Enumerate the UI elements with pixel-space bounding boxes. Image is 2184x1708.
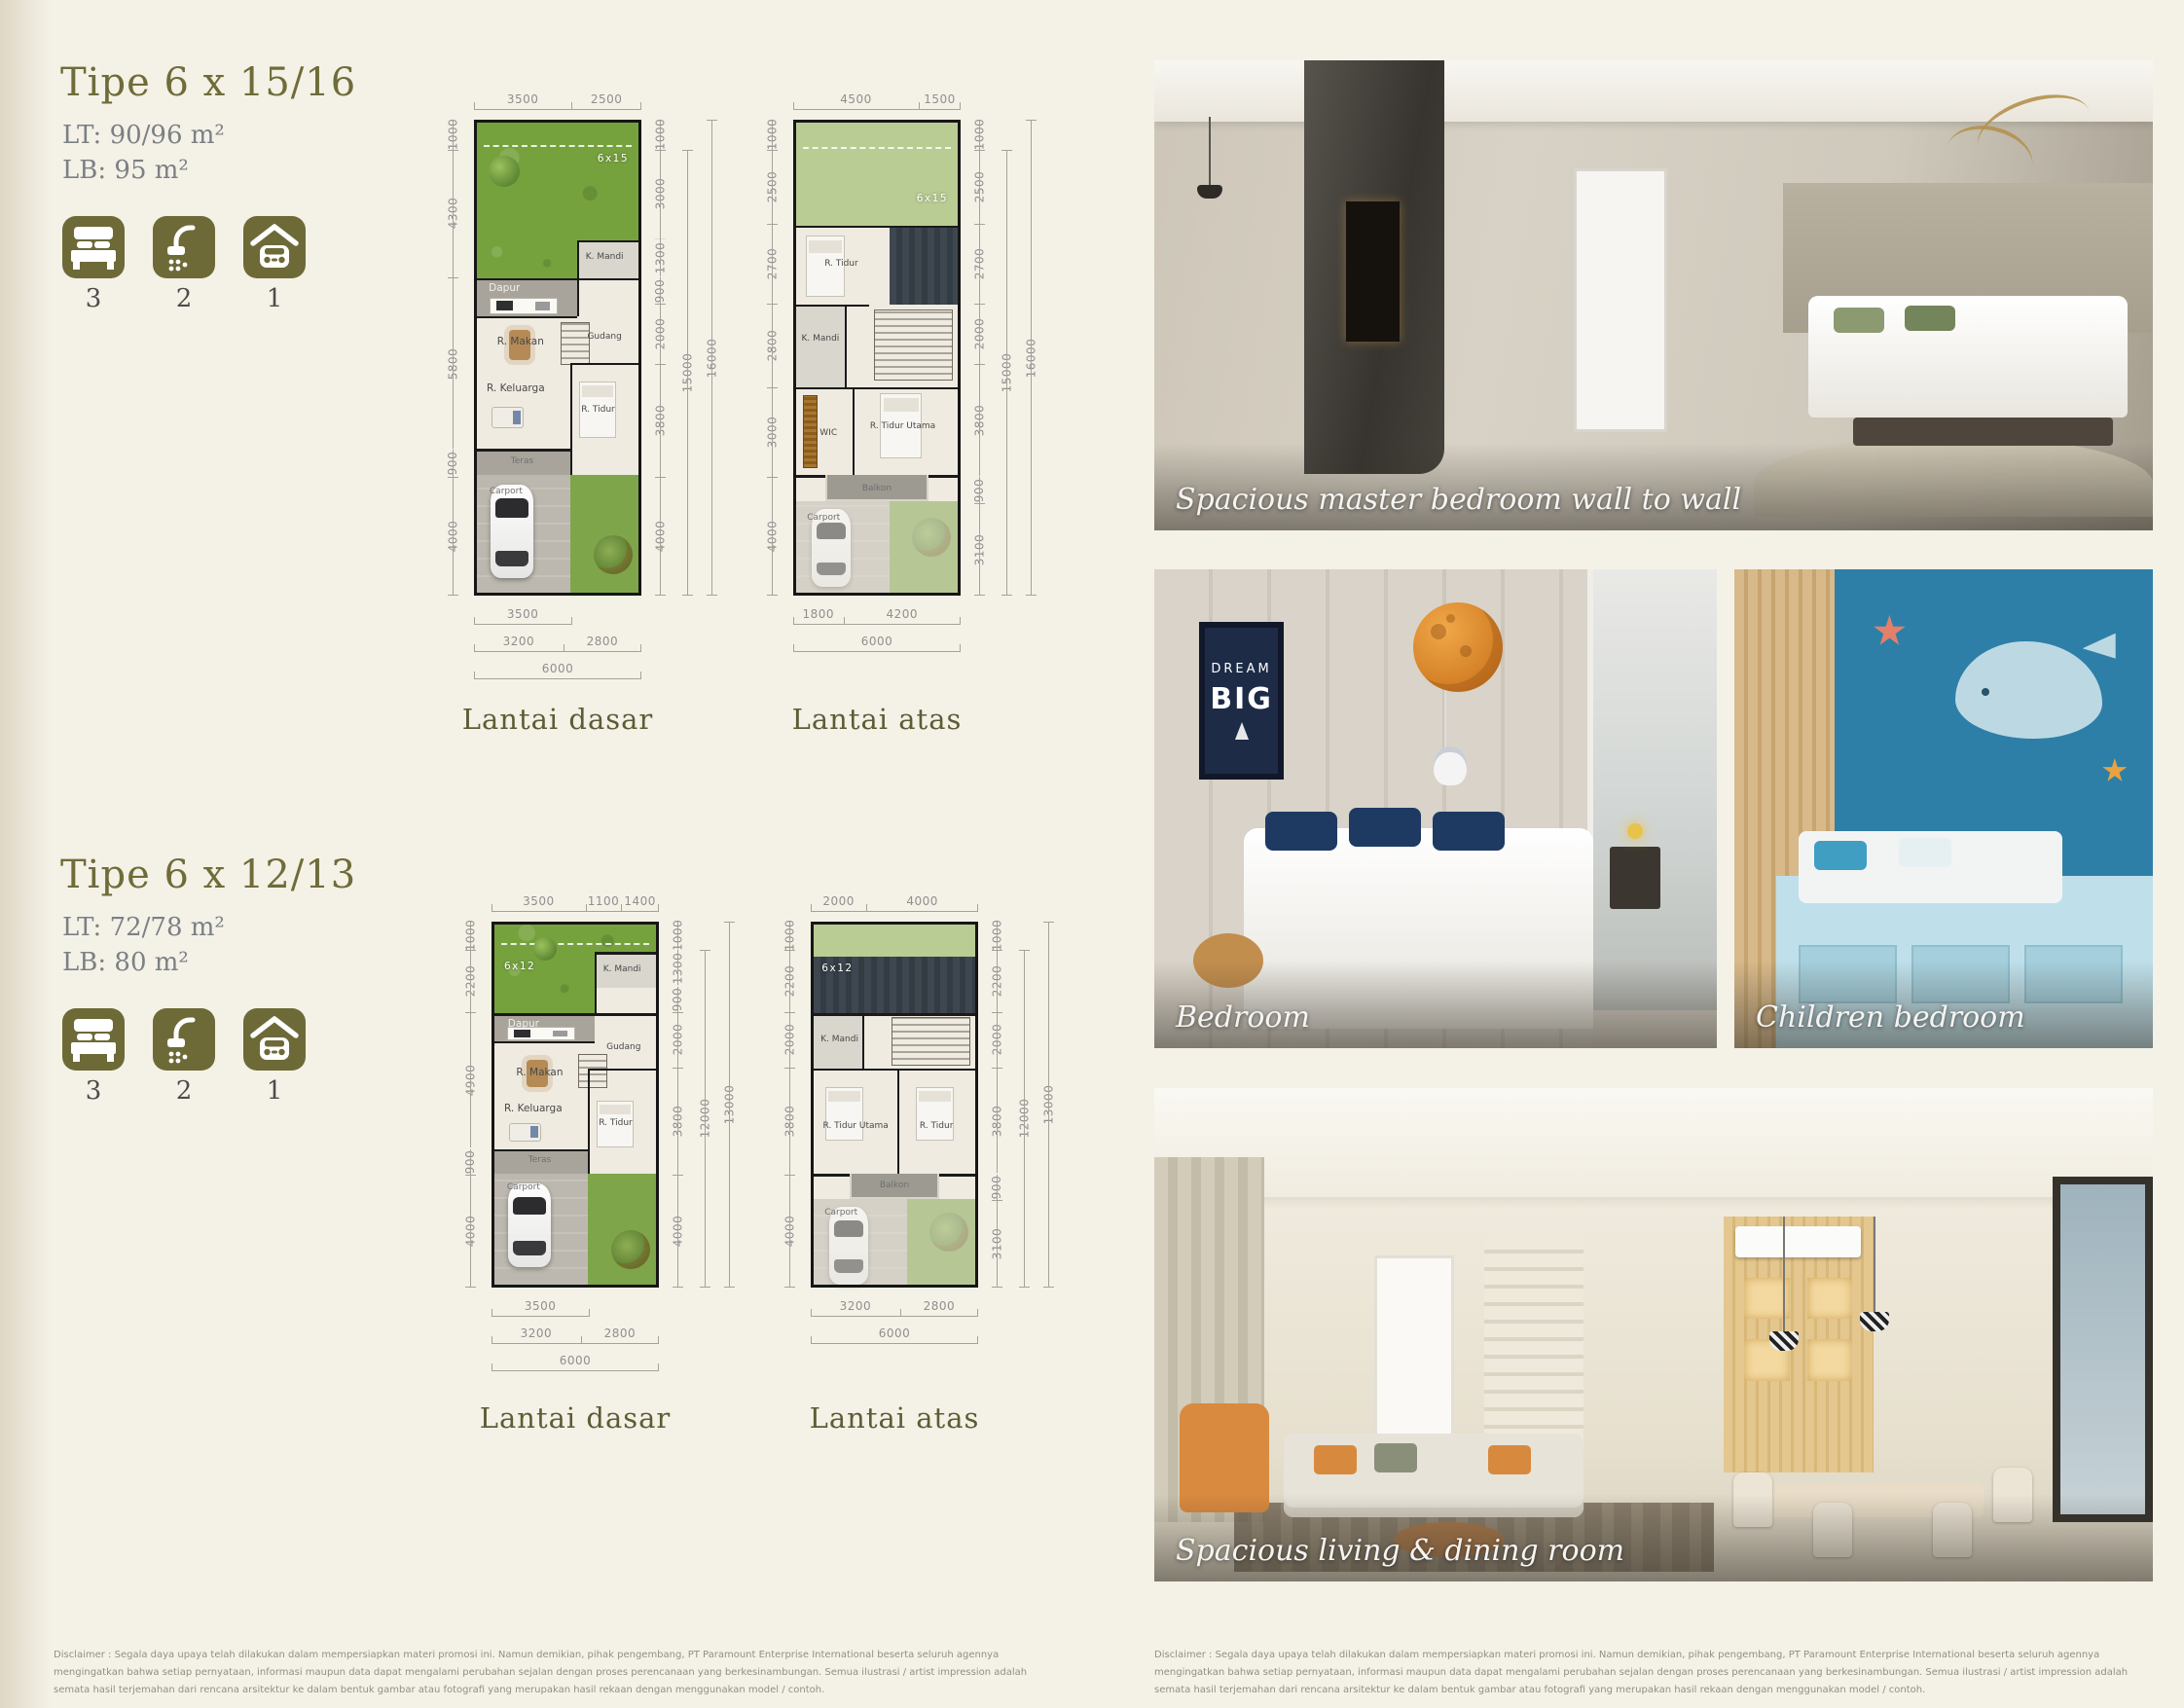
bottom-dimensions: 3500 bbox=[491, 1297, 659, 1317]
wall bbox=[862, 1013, 864, 1069]
dim-label: 900 bbox=[462, 1147, 478, 1177]
bed-icon bbox=[62, 1008, 125, 1071]
dim-label: 3500 bbox=[505, 92, 541, 106]
room-label: R. Tidur bbox=[581, 405, 615, 415]
wall bbox=[595, 952, 597, 1013]
bed bbox=[825, 1087, 864, 1142]
dim-label: 3000 bbox=[652, 175, 668, 213]
dim-label: 4000 bbox=[445, 518, 460, 556]
wall bbox=[494, 1149, 588, 1152]
sofa bbox=[509, 1123, 542, 1143]
type-title: Tipe 6 x 15/16 bbox=[60, 60, 356, 105]
sofa bbox=[491, 407, 525, 428]
cushion bbox=[1488, 1445, 1531, 1474]
room-label: R. Tidur bbox=[599, 1118, 633, 1128]
plot-size-badge: 6x12 bbox=[504, 961, 535, 972]
overall-dimensions: 12000 bbox=[693, 922, 716, 1288]
overall-dimensions: 16000 bbox=[700, 120, 723, 596]
car-icon bbox=[508, 1183, 551, 1267]
stairs bbox=[561, 322, 590, 364]
dim-label: 3100 bbox=[989, 1225, 1004, 1263]
wall bbox=[570, 363, 638, 365]
dim-label: 2500 bbox=[764, 167, 780, 205]
lit-niche bbox=[1807, 1339, 1852, 1380]
room-label: Teras bbox=[528, 1155, 551, 1165]
dim-label: 1100 bbox=[586, 894, 622, 908]
bathroom-count: 2 bbox=[153, 1076, 215, 1106]
photo-caption-bar: Spacious living & dining room bbox=[1154, 1494, 2153, 1581]
land-area: LT: 72/78 m² bbox=[62, 913, 225, 942]
dim-label: 16000 bbox=[1023, 335, 1038, 381]
pillow bbox=[1349, 808, 1421, 847]
car-icon bbox=[829, 1207, 868, 1285]
dim-label: 2500 bbox=[971, 167, 987, 205]
dim-label: 6000 bbox=[877, 1326, 913, 1340]
lawn bbox=[907, 1199, 975, 1285]
cushion bbox=[1314, 1445, 1357, 1474]
dim-label: 900 bbox=[445, 449, 460, 478]
pillow bbox=[1899, 838, 1951, 867]
dim-label: 3000 bbox=[764, 414, 780, 452]
room-label: R. Tidur Utama bbox=[870, 421, 935, 431]
dim-label: 900 bbox=[971, 475, 987, 504]
overall-width-dimension: 6000 bbox=[474, 660, 641, 679]
dim-label: 2000 bbox=[670, 1021, 685, 1059]
dim-label: 2000 bbox=[652, 315, 668, 353]
dim-label: 3500 bbox=[521, 894, 557, 908]
dim-label: 3800 bbox=[782, 1103, 797, 1141]
wardrobe bbox=[1304, 60, 1444, 474]
floor-caption: Lantai dasar bbox=[460, 703, 655, 736]
photo-caption: Children bedroom bbox=[1756, 1000, 2025, 1035]
bottom-dimensions: 3200 2800 bbox=[491, 1325, 659, 1344]
bottom-dimensions: 3200 2800 bbox=[811, 1297, 978, 1317]
wall bbox=[570, 363, 572, 475]
dim-label: 1000 bbox=[971, 116, 987, 154]
overall-dimensions: 13000 bbox=[717, 922, 741, 1288]
page-edge-shade bbox=[0, 0, 51, 1708]
dim-label: 2800 bbox=[922, 1299, 958, 1313]
room-label: R. Tidur Utama bbox=[823, 1121, 889, 1131]
wall bbox=[796, 305, 869, 307]
dim-label: 2000 bbox=[971, 315, 987, 353]
garden-zone bbox=[814, 925, 975, 957]
room-label: Carport bbox=[807, 513, 840, 523]
bench bbox=[1853, 418, 2113, 446]
dim-label: 15000 bbox=[679, 349, 695, 395]
wall bbox=[814, 1013, 975, 1016]
room-label: Carport bbox=[824, 1208, 857, 1217]
dim-label: 900 bbox=[989, 1173, 1004, 1202]
car-icon bbox=[491, 485, 533, 578]
top-dimensions: 3500 1100 1400 bbox=[491, 892, 659, 912]
lamp bbox=[1627, 823, 1643, 839]
dim-label: 1400 bbox=[622, 894, 658, 908]
wall bbox=[494, 1041, 595, 1043]
photo-caption-bar: Bedroom bbox=[1154, 961, 1717, 1048]
tv bbox=[1346, 201, 1400, 343]
pendant-lamp bbox=[1874, 1217, 1875, 1314]
right-dimensions: 1000 2200 2000 3800 900 3100 bbox=[982, 922, 1011, 1288]
dim-label: 3200 bbox=[501, 635, 537, 648]
bush-icon bbox=[594, 535, 633, 574]
wall bbox=[853, 387, 855, 475]
whale-illustration bbox=[1955, 641, 2101, 739]
photo-master-bedroom: Spacious master bedroom wall to wall bbox=[1154, 60, 2153, 530]
pillow bbox=[1265, 812, 1337, 851]
stairs bbox=[874, 309, 953, 380]
dim-label: 4000 bbox=[764, 518, 780, 556]
dim-label: 4900 bbox=[462, 1062, 478, 1100]
dim-label: 3500 bbox=[505, 607, 541, 621]
mattress bbox=[1799, 831, 2062, 903]
air-conditioner bbox=[1735, 1226, 1861, 1257]
wardrobe bbox=[803, 395, 818, 467]
room-label: Carport bbox=[490, 487, 523, 496]
dim-label: 12000 bbox=[1016, 1096, 1032, 1142]
plot-size-badge: 6x15 bbox=[598, 153, 629, 164]
dim-label: 4300 bbox=[445, 195, 460, 233]
wall bbox=[477, 316, 577, 318]
pendant-lamp bbox=[1783, 1217, 1785, 1333]
floor-caption: Lantai atas bbox=[797, 1401, 992, 1435]
overall-dimensions: 12000 bbox=[1012, 922, 1036, 1288]
dim-label: 2200 bbox=[782, 962, 797, 999]
building-area: LB: 80 m² bbox=[62, 948, 189, 977]
door bbox=[1574, 168, 1667, 431]
left-dimensions: 1000 2500 2700 2800 3000 4000 bbox=[757, 120, 786, 596]
wall bbox=[477, 449, 570, 452]
disclaimer-left: Disclaimer : Segala daya upaya telah dil… bbox=[54, 1647, 1032, 1699]
photo-caption-bar: Spacious master bedroom wall to wall bbox=[1154, 443, 2153, 530]
bed bbox=[916, 1087, 955, 1142]
wall bbox=[897, 1069, 899, 1174]
right-dimensions: 1000 2500 2700 2000 3800 900 3100 bbox=[965, 120, 994, 596]
overall-dimensions: 15000 bbox=[675, 120, 699, 596]
wall bbox=[588, 1069, 656, 1071]
pillow bbox=[1433, 812, 1505, 851]
photo-caption-bar: Children bedroom bbox=[1734, 961, 2153, 1048]
wall bbox=[577, 240, 638, 243]
dim-label: 4000 bbox=[652, 518, 668, 556]
top-dimensions: 3500 2500 bbox=[474, 91, 641, 110]
top-dimensions: 4500 1500 bbox=[793, 91, 961, 110]
room-label: Gudang bbox=[587, 332, 621, 342]
room-label: Dapur bbox=[489, 282, 520, 294]
dim-label: 3100 bbox=[971, 530, 987, 568]
bottom-dimensions: 3200 2800 bbox=[474, 633, 641, 652]
poster-text: DREAM bbox=[1211, 662, 1271, 676]
starfish-icon bbox=[2102, 758, 2128, 783]
cushion bbox=[1374, 1443, 1417, 1472]
bed-icon bbox=[62, 216, 125, 278]
carport-count: 1 bbox=[243, 1076, 306, 1106]
dim-label: 3800 bbox=[989, 1103, 1004, 1141]
lawn bbox=[588, 1174, 656, 1285]
bottom-dimensions: 3500 bbox=[474, 605, 641, 625]
pendant-lamp bbox=[1209, 117, 1211, 185]
lawn bbox=[890, 501, 958, 593]
dim-label: 2700 bbox=[764, 245, 780, 283]
garden-zone bbox=[494, 925, 656, 952]
setback-line bbox=[501, 943, 650, 945]
kitchen-counter bbox=[490, 298, 558, 314]
disclaimer-right: Disclaimer : Segala daya upaya telah dil… bbox=[1154, 1647, 2132, 1699]
shower-icon bbox=[153, 1008, 215, 1071]
left-dimensions: 1000 2200 2000 3800 4000 bbox=[775, 922, 804, 1288]
bathroom-count: 2 bbox=[153, 284, 215, 313]
land-area: LT: 90/96 m² bbox=[62, 121, 225, 150]
room-label: Teras bbox=[511, 456, 533, 466]
dim-label: 2500 bbox=[589, 92, 625, 106]
wall bbox=[588, 1069, 590, 1174]
dim-label: 1000 bbox=[445, 116, 460, 154]
moon-balloon bbox=[1413, 602, 1503, 692]
photo-caption: Bedroom bbox=[1176, 1000, 1310, 1035]
setback-line bbox=[803, 147, 952, 149]
plot-size-badge: 6x12 bbox=[821, 963, 853, 974]
bed bbox=[1808, 296, 2128, 418]
window bbox=[2053, 1177, 2153, 1522]
floorplan-type2-upper: 6x12 K. Mandi R. Tidur Utama R. Tidur Ba… bbox=[811, 922, 978, 1288]
room-label: R. Tidur bbox=[920, 1121, 954, 1131]
type-title: Tipe 6 x 12/13 bbox=[60, 853, 356, 897]
carport-icon bbox=[243, 216, 306, 278]
room-label: R. Tidur bbox=[824, 259, 858, 269]
dim-label: 900 bbox=[670, 984, 685, 1013]
bush-icon bbox=[929, 1213, 968, 1252]
room-label: K. Mandi bbox=[586, 252, 624, 262]
stairs bbox=[892, 1017, 970, 1066]
garden-zone bbox=[796, 123, 958, 226]
window bbox=[1587, 569, 1717, 1010]
photo-living-dining: Spacious living & dining room bbox=[1154, 1088, 2153, 1581]
brochure-page: Tipe 6 x 15/16 LT: 90/96 m² LB: 95 m² 3 … bbox=[0, 0, 2184, 1708]
photo-children-bedroom: Children bedroom bbox=[1734, 569, 2153, 1048]
dim-label: 4000 bbox=[670, 1213, 685, 1251]
wall bbox=[796, 226, 958, 229]
room-label: Gudang bbox=[606, 1042, 640, 1052]
floor-caption: Lantai atas bbox=[780, 703, 974, 736]
setback-line bbox=[484, 145, 633, 147]
room-label: Balkon bbox=[862, 484, 892, 493]
lawn bbox=[570, 475, 638, 593]
dim-label: 1300 bbox=[652, 239, 668, 277]
wall bbox=[577, 240, 579, 317]
dim-label: 4000 bbox=[462, 1213, 478, 1251]
plot-size-badge: 6x15 bbox=[917, 193, 948, 204]
rocket-icon bbox=[1235, 722, 1249, 740]
wall bbox=[814, 1069, 975, 1071]
bedroom-count: 3 bbox=[62, 1076, 125, 1106]
dim-label: 2800 bbox=[764, 327, 780, 365]
starfish-icon bbox=[1873, 615, 1906, 648]
bathroom-zone bbox=[796, 305, 845, 387]
overall-dimensions: 13000 bbox=[1037, 922, 1060, 1288]
building-area: LB: 95 m² bbox=[62, 156, 189, 185]
dim-label: 3200 bbox=[519, 1326, 555, 1340]
ceiling bbox=[1154, 1088, 2153, 1197]
left-dimensions: 1000 2200 4900 900 4000 bbox=[455, 922, 485, 1288]
dim-label: 2800 bbox=[602, 1326, 638, 1340]
floorplan-type2-ground: 6x12 K. Mandi Dapur R. Makan Gudang R. K… bbox=[491, 922, 659, 1288]
room-label: K. Mandi bbox=[603, 964, 641, 974]
dim-label: 2000 bbox=[782, 1021, 797, 1059]
dim-label: 13000 bbox=[721, 1082, 737, 1128]
room-label: Dapur bbox=[508, 1018, 539, 1030]
stairs bbox=[578, 1054, 607, 1088]
room-label: K. Mandi bbox=[820, 1035, 858, 1044]
right-dimensions: 1000 1300 900 2000 3800 4000 bbox=[663, 922, 692, 1288]
photo-caption: Spacious living & dining room bbox=[1176, 1534, 1624, 1568]
dim-label: 3800 bbox=[652, 401, 668, 439]
dim-label: 4200 bbox=[885, 607, 921, 621]
pillow bbox=[1905, 306, 1955, 331]
dim-label: 1800 bbox=[801, 607, 837, 621]
wall bbox=[477, 278, 638, 281]
dream-big-poster: DREAM BIG bbox=[1199, 622, 1284, 780]
dim-label: 3800 bbox=[971, 401, 987, 439]
overall-width-dimension: 6000 bbox=[811, 1325, 978, 1344]
shelving-unit bbox=[1724, 1217, 1874, 1473]
dim-label: 2700 bbox=[971, 245, 987, 283]
dim-label: 4500 bbox=[838, 92, 874, 106]
room-label: R. Makan bbox=[516, 1067, 563, 1078]
wall bbox=[595, 952, 656, 955]
photo-caption: Spacious master bedroom wall to wall bbox=[1176, 483, 1741, 517]
right-dimensions: 1000 3000 1300 900 2000 3800 4000 bbox=[645, 120, 674, 596]
dim-label: 15000 bbox=[999, 349, 1014, 395]
floor-caption: Lantai dasar bbox=[478, 1401, 673, 1435]
overall-dimensions: 16000 bbox=[1019, 120, 1042, 596]
room-label: K. Mandi bbox=[801, 334, 839, 344]
room-label: R. Keluarga bbox=[504, 1103, 563, 1114]
dim-label: 16000 bbox=[704, 335, 719, 381]
dim-label: 13000 bbox=[1040, 1082, 1056, 1128]
overall-dimensions: 15000 bbox=[995, 120, 1018, 596]
carport-icon bbox=[243, 1008, 306, 1071]
dim-label: 6000 bbox=[558, 1354, 594, 1367]
room-label: R. Makan bbox=[497, 336, 544, 347]
floorplan-type1-ground: 6x15 Dapur K. Mandi R. Makan Gudang R. K… bbox=[474, 120, 641, 596]
bottom-dimensions: 1800 4200 bbox=[793, 605, 961, 625]
garden-zone bbox=[477, 240, 577, 278]
dim-label: 1300 bbox=[670, 949, 685, 987]
dim-label: 2200 bbox=[462, 962, 478, 999]
bush-icon bbox=[611, 1230, 650, 1269]
left-dimensions: 1000 4300 5800 900 4000 bbox=[438, 120, 467, 596]
floorplan-type1-upper: 6x15 R. Tidur K. Mandi WIC R. Tidur Utam… bbox=[793, 120, 961, 596]
dim-label: 2200 bbox=[989, 962, 1004, 999]
photo-bedroom: DREAM BIG Bedroom bbox=[1154, 569, 1717, 1048]
dim-label: 4000 bbox=[904, 894, 940, 908]
pillow bbox=[1834, 308, 1884, 333]
room-label: R. Keluarga bbox=[487, 382, 545, 394]
wall bbox=[845, 305, 847, 387]
dim-label: 12000 bbox=[697, 1096, 712, 1142]
top-dimensions: 2000 4000 bbox=[811, 892, 978, 912]
dim-label: 900 bbox=[652, 276, 668, 306]
dim-label: 4000 bbox=[782, 1213, 797, 1251]
dim-label: 3500 bbox=[523, 1299, 559, 1313]
carport-count: 1 bbox=[243, 284, 306, 313]
dim-label: 2800 bbox=[585, 635, 621, 648]
bedroom-count: 3 bbox=[62, 284, 125, 313]
overall-width-dimension: 6000 bbox=[491, 1352, 659, 1371]
poster-text: BIG bbox=[1210, 682, 1273, 716]
wall bbox=[494, 1013, 656, 1016]
dim-label: 1500 bbox=[922, 92, 958, 106]
dim-label: 1000 bbox=[652, 116, 668, 154]
astronaut-figure bbox=[1434, 746, 1467, 785]
tree-icon bbox=[489, 156, 520, 187]
dim-label: 5800 bbox=[445, 345, 460, 382]
nightstand bbox=[1610, 847, 1660, 909]
dim-label: 2000 bbox=[820, 894, 856, 908]
dim-label: 6000 bbox=[859, 635, 895, 648]
tree-icon bbox=[533, 937, 557, 961]
dim-label: 6000 bbox=[540, 662, 576, 675]
wall bbox=[796, 387, 958, 389]
dim-label: 3200 bbox=[838, 1299, 874, 1313]
room-label: Balkon bbox=[880, 1181, 909, 1190]
room-label: WIC bbox=[819, 428, 837, 438]
room-label: Carport bbox=[507, 1182, 540, 1192]
overall-width-dimension: 6000 bbox=[793, 633, 961, 652]
pillow bbox=[1814, 841, 1867, 870]
shower-icon bbox=[153, 216, 215, 278]
bush-icon bbox=[912, 518, 951, 557]
dim-label: 3800 bbox=[670, 1103, 685, 1141]
roof-zone bbox=[890, 226, 958, 306]
lit-niche bbox=[1807, 1278, 1852, 1319]
dim-label: 2000 bbox=[989, 1021, 1004, 1059]
dim-label: 1000 bbox=[764, 116, 780, 154]
